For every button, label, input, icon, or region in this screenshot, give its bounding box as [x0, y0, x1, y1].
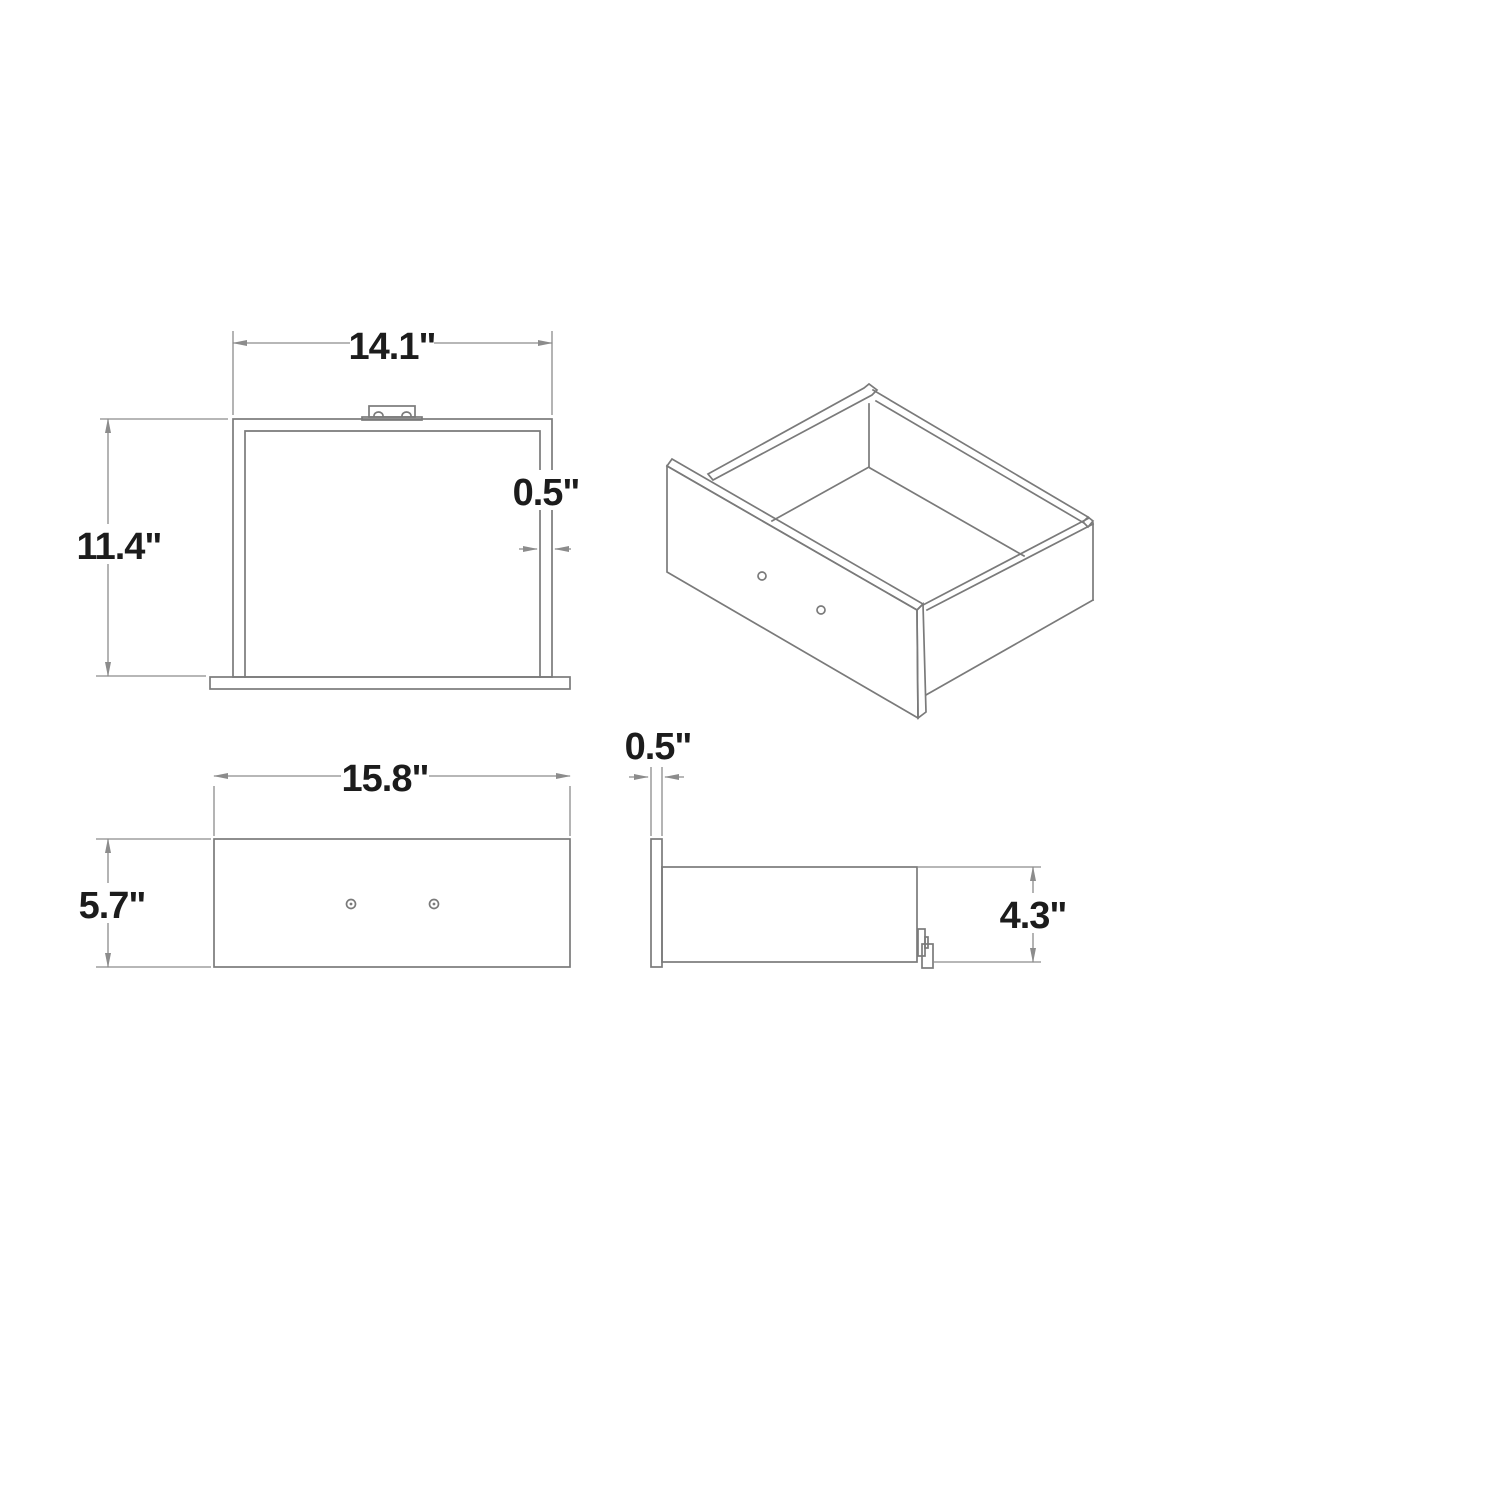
panel-outer-face [667, 466, 918, 718]
iso-front-panel [667, 459, 926, 718]
back-thickness-dimension: 0.5" [512, 470, 580, 549]
dim-label-back-thickness: 0.5" [513, 472, 580, 514]
side-view: 0.5" 4.3" [625, 726, 1067, 968]
right-wall-top-outer [927, 524, 1093, 610]
back-wall-top-inner [876, 401, 1084, 523]
front-panel-holes [347, 900, 439, 909]
frame-inner [245, 431, 540, 677]
panel-right-face [917, 604, 926, 718]
iso-back-wall [870, 390, 1093, 556]
drawing-svg: 14.1" 11.4" 0.5" [0, 0, 1500, 1500]
right-wall-bottom-edge [926, 600, 1093, 695]
technical-drawing-canvas: 14.1" 11.4" 0.5" [0, 0, 1500, 1500]
iso-right-wall [923, 518, 1093, 695]
handle-hole-center [350, 903, 353, 906]
back-view-outline [210, 419, 570, 689]
rear-clip [918, 929, 933, 968]
isometric-view [667, 384, 1093, 718]
left-wall-top-rail [708, 384, 877, 480]
clip-bump-left [374, 412, 383, 416]
dim-label-back-width: 14.1" [349, 326, 436, 368]
back-view: 14.1" 11.4" 0.5" [77, 324, 580, 689]
front-view: 15.8" 5.7" [79, 756, 570, 967]
back-wall-top-outer [873, 390, 1088, 517]
dim-label-back-height: 11.4" [77, 526, 162, 568]
front-height-dimension: 5.7" [79, 839, 211, 967]
frame-outer [233, 419, 552, 677]
slide-clip [362, 406, 422, 420]
dim-label-side-thickness: 0.5" [625, 726, 692, 768]
left-wall-floor-junction [772, 467, 869, 521]
dim-label-front-height: 5.7" [79, 885, 146, 927]
clip-bump-right [402, 412, 411, 416]
handle-hole [758, 572, 766, 580]
side-height-dimension: 4.3" [917, 867, 1066, 962]
panel-top-face [667, 459, 923, 610]
clip-step [925, 937, 928, 948]
handle-hole [817, 606, 825, 614]
back-wall-floor-junction [870, 468, 1024, 556]
back-width-dimension: 14.1" [233, 324, 552, 415]
right-wall-top-inner [923, 518, 1089, 605]
front-panel-outline [214, 839, 570, 967]
back-height-dimension: 11.4" [77, 419, 228, 676]
side-wall-outline [662, 867, 917, 962]
front-panel-edge [651, 839, 662, 967]
dim-label-side-height: 4.3" [1000, 895, 1067, 937]
front-width-dimension: 15.8" [214, 756, 570, 836]
bottom-strip [210, 677, 570, 689]
handle-hole-center [433, 903, 436, 906]
dim-label-front-width: 15.8" [342, 758, 429, 800]
iso-left-wall [708, 384, 877, 521]
side-thickness-dimension: 0.5" [625, 726, 692, 836]
